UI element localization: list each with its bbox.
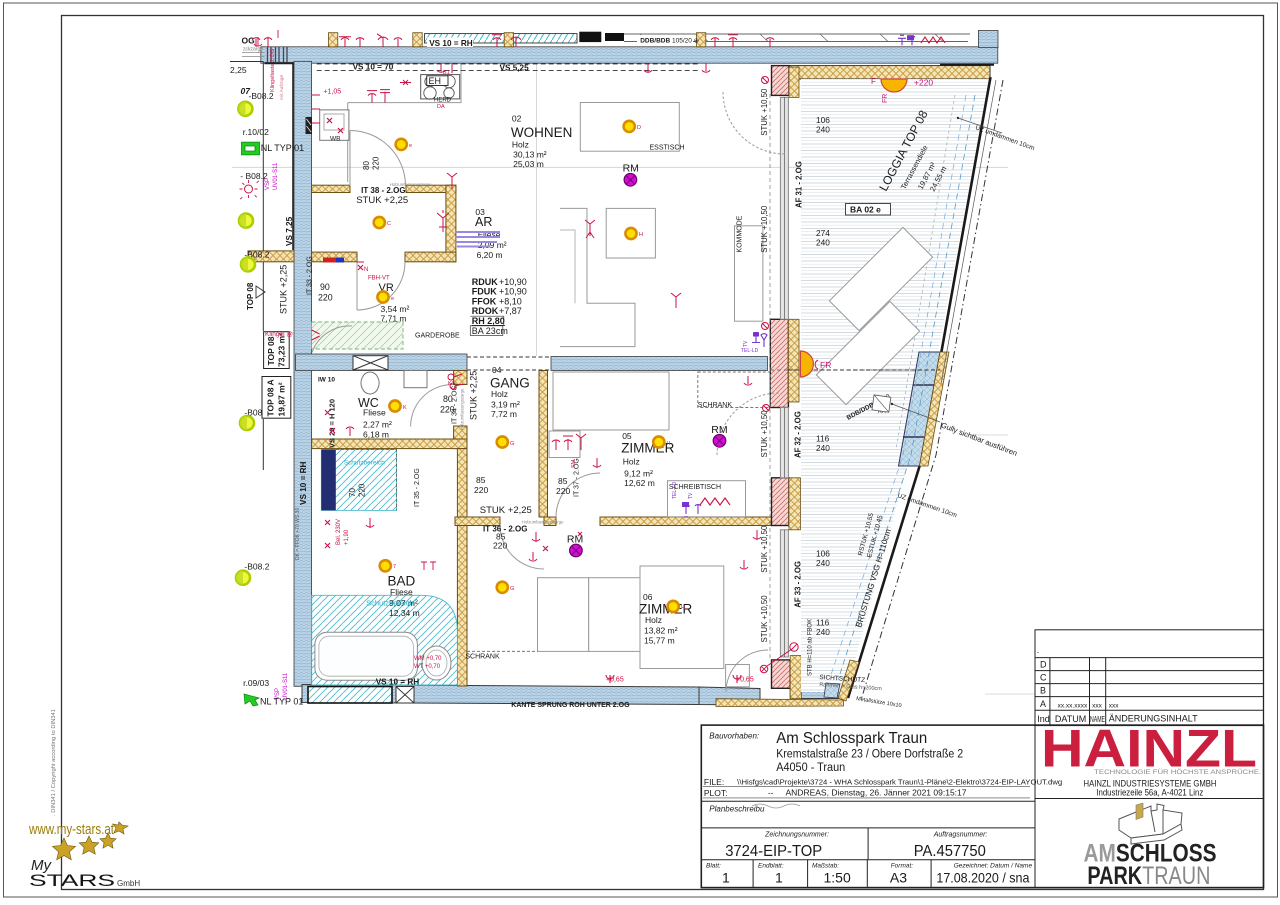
svg-text:xx.xx.xxxx: xx.xx.xxxx	[1058, 703, 1088, 710]
svg-text:TOP 08 A: TOP 08 A	[266, 379, 276, 416]
svg-text:17.08.2020 / sna: 17.08.2020 / sna	[936, 869, 1029, 885]
svg-text:AF 33 - 2.OG: AF 33 - 2.OG	[794, 561, 803, 608]
svg-text:e: e	[409, 143, 412, 149]
svg-text:02: 02	[512, 114, 522, 124]
svg-text:Schutzbereich: Schutzbereich	[366, 599, 414, 608]
svg-text:OG: OG	[242, 35, 256, 45]
svg-text:TV: TV	[743, 340, 749, 347]
svg-text:TEL-LD: TEL-LD	[741, 348, 759, 354]
svg-text:25,03 m: 25,03 m	[513, 159, 544, 169]
svg-text:6,18 m: 6,18 m	[363, 430, 389, 440]
svg-text:RH 2,80: RH 2,80	[472, 316, 505, 326]
svg-text:-B08.2: -B08.2	[244, 562, 269, 572]
svg-text:STUK +10,50: STUK +10,50	[760, 88, 769, 136]
svg-text:Klingel @: Klingel @	[265, 331, 293, 338]
svg-text:H: H	[667, 441, 671, 447]
svg-text:240: 240	[816, 443, 830, 453]
svg-text:mit Aufzüge: mit Aufzüge	[279, 75, 285, 100]
svg-text:7,72 m: 7,72 m	[491, 409, 517, 419]
svg-text:3,19 m²: 3,19 m²	[491, 400, 520, 410]
svg-text:VSP: VSP	[275, 688, 281, 700]
svg-text:UV01-S11: UV01-S11	[283, 672, 289, 700]
svg-text:9,12 m²: 9,12 m²	[624, 469, 653, 479]
svg-text:FFOK: FFOK	[472, 296, 497, 306]
svg-text:1: 1	[722, 869, 730, 885]
svg-text:2,27 m²: 2,27 m²	[363, 420, 392, 430]
svg-text:VSP: VSP	[265, 178, 271, 190]
svg-text:+1,05: +1,05	[323, 89, 341, 96]
svg-text:2,25: 2,25	[230, 65, 247, 75]
svg-text:GARDEROBE: GARDEROBE	[415, 333, 460, 340]
svg-text:240: 240	[816, 627, 830, 637]
svg-text:r.10/02: r.10/02	[243, 127, 269, 137]
svg-text:+10,90: +10,90	[499, 287, 527, 297]
svg-text:G: G	[510, 586, 514, 592]
svg-text:AR: AR	[475, 215, 492, 229]
svg-text:Kremstalstraße 23 / Obere Dorf: Kremstalstraße 23 / Obere Dorfstraße 2	[776, 749, 963, 761]
svg-text:- B08.2: - B08.2	[240, 171, 268, 181]
svg-text:RM: RM	[623, 163, 639, 175]
svg-text:220: 220	[474, 485, 488, 495]
svg-text:N: N	[364, 267, 368, 273]
svg-text:UV01-S11: UV01-S11	[273, 162, 279, 190]
svg-text:Holz: Holz	[645, 615, 662, 625]
svg-text:ESSTISCH: ESSTISCH	[650, 145, 685, 152]
svg-text:116: 116	[816, 434, 830, 444]
svg-text:VS 5,25: VS 5,25	[500, 64, 530, 73]
svg-text:STUK +10,50: STUK +10,50	[760, 595, 769, 643]
svg-text:Auftragsnummer:: Auftragsnummer:	[933, 832, 988, 839]
svg-text:VS 10 = 70: VS 10 = 70	[353, 63, 394, 72]
svg-text:+1,90: +1,90	[344, 529, 350, 545]
svg-text:r.09/03: r.09/03	[243, 678, 269, 688]
svg-text:AF 32 - 2.OG: AF 32 - 2.OG	[794, 411, 803, 458]
svg-text:HERD: HERD	[434, 98, 452, 104]
svg-text:7,71 m: 7,71 m	[381, 314, 407, 324]
svg-text:FR: FR	[820, 360, 831, 370]
svg-text:Holz: Holz	[491, 389, 508, 399]
svg-text:G: G	[510, 441, 514, 447]
svg-text:IT 35 - 2.OG: IT 35 - 2.OG	[414, 468, 421, 507]
svg-text:220: 220	[493, 541, 507, 551]
svg-text:NL TYP 01: NL TYP 01	[260, 697, 303, 707]
svg-text:240: 240	[816, 125, 830, 135]
svg-text:220: 220	[372, 156, 381, 170]
svg-text:WC: WC	[358, 396, 379, 410]
svg-text:Bel. 230V: Bel. 230V	[336, 519, 342, 545]
svg-text:VS 10 = RH: VS 10 = RH	[299, 461, 308, 505]
svg-text:274: 274	[816, 228, 830, 238]
svg-text:e: e	[391, 296, 394, 302]
svg-text:Holz: Holz	[623, 457, 640, 467]
svg-text:+7,87: +7,87	[499, 306, 522, 316]
svg-text:C: C	[387, 221, 391, 227]
svg-text:FDUK: FDUK	[472, 287, 497, 297]
svg-text:RDUK: RDUK	[472, 277, 498, 287]
svg-text:EH: EH	[429, 76, 442, 86]
svg-text:. DIN341 / Copyright according: . DIN341 / Copyright according to DIN341	[51, 709, 57, 816]
svg-text:GANG: GANG	[490, 376, 530, 391]
svg-text:B: B	[1040, 686, 1046, 696]
svg-text:04: 04	[492, 365, 502, 375]
svg-text:1:50: 1:50	[824, 869, 851, 885]
svg-text:STUK +10,50: STUK +10,50	[760, 205, 769, 253]
svg-text:Holzumfassungszarge: Holzumfassungszarge	[460, 388, 465, 430]
svg-text:SCHRANK: SCHRANK	[698, 402, 733, 409]
svg-text:85: 85	[558, 476, 568, 486]
svg-text:-: -	[1037, 650, 1039, 656]
svg-text:12,34 m: 12,34 m	[389, 608, 420, 618]
svg-text:STUK +10,50: STUK +10,50	[760, 525, 769, 573]
svg-text:FILE:: FILE:	[704, 777, 724, 787]
svg-text:D: D	[637, 125, 641, 131]
svg-text:+220: +220	[914, 78, 933, 88]
svg-text:240: 240	[816, 238, 830, 248]
svg-text:Blatt:: Blatt:	[706, 863, 721, 870]
svg-text:STUK +2,25: STUK +2,25	[480, 505, 532, 516]
svg-text:GmbH: GmbH	[117, 879, 140, 888]
svg-text:3724-EIP-TOP: 3724-EIP-TOP	[725, 843, 822, 860]
svg-text:PARKTRAUN: PARKTRAUN	[1087, 862, 1210, 890]
svg-text:STB H=110 ab FBOK: STB H=110 ab FBOK	[808, 619, 814, 676]
svg-text:SM: SM	[571, 459, 577, 468]
svg-text:KANTE SPRUNG ROH UNTER 2.OG: KANTE SPRUNG ROH UNTER 2.OG	[511, 702, 630, 709]
svg-text:7: 7	[393, 564, 396, 570]
svg-text:Bauvorhaben:: Bauvorhaben:	[709, 732, 759, 741]
svg-text:C: C	[1040, 673, 1047, 683]
svg-text:\\Hisfgs\cad\Projekte\3724 - W: \\Hisfgs\cad\Projekte\3724 - WHA Schloss…	[737, 778, 1062, 787]
svg-text:KOMMODE: KOMMODE	[737, 215, 744, 252]
svg-text:STUK +2,25: STUK +2,25	[469, 371, 479, 420]
svg-text:Industriezeile 56a, A-4021 Lin: Industriezeile 56a, A-4021 Linz	[1096, 787, 1203, 797]
svg-text:05: 05	[622, 431, 632, 441]
svg-text:--: --	[768, 788, 774, 797]
svg-text:DK = FFOK +70 WS 30: DK = FFOK +70 WS 30	[295, 508, 301, 560]
svg-text:D: D	[1040, 660, 1047, 670]
svg-text:Holzumfassungszarge: Holzumfassungszarge	[522, 520, 564, 525]
svg-text:A3: A3	[890, 869, 907, 885]
svg-text:NL TYP 01: NL TYP 01	[261, 143, 304, 153]
svg-text:3,54 m²: 3,54 m²	[381, 304, 410, 314]
svg-text:DDB/BDB 105/20 ⊕: DDB/BDB 105/20 ⊕	[640, 38, 699, 45]
svg-text:+0,65: +0,65	[736, 677, 754, 684]
svg-text:DA: DA	[437, 104, 445, 110]
svg-text:STUK +2,25: STUK +2,25	[356, 195, 408, 206]
svg-text:H: H	[639, 232, 643, 238]
svg-text:SCHRANK: SCHRANK	[465, 654, 500, 661]
svg-text:FR: FR	[882, 94, 889, 103]
svg-text:K1: K1	[448, 381, 455, 387]
svg-text:VS 10 = RH: VS 10 = RH	[429, 39, 473, 48]
svg-text:12,62 m: 12,62 m	[624, 478, 655, 488]
svg-text:Schutzbereich: Schutzbereich	[344, 459, 386, 466]
svg-text:15,77 m: 15,77 m	[644, 636, 675, 646]
svg-text:Holz: Holz	[512, 139, 529, 149]
svg-text:PA.457750: PA.457750	[914, 843, 986, 860]
svg-text:Fliese: Fliese	[390, 587, 413, 597]
svg-text:220: 220	[318, 293, 333, 303]
svg-text:Planbeschreibu: Planbeschreibu	[709, 805, 765, 814]
svg-text:80: 80	[362, 161, 371, 170]
svg-text:F: F	[871, 77, 876, 86]
svg-text:IT 38 - 2.OG: IT 38 - 2.OG	[361, 186, 405, 195]
svg-text:Zeichnungsnummer:: Zeichnungsnummer:	[764, 832, 829, 839]
svg-text:IT 36 - 2.OG: IT 36 - 2.OG	[483, 525, 527, 534]
svg-text:AF 31 - 2.OG: AF 31 - 2.OG	[794, 161, 803, 208]
svg-text:STUK +10,50: STUK +10,50	[760, 410, 769, 458]
svg-text:BAD: BAD	[388, 574, 416, 589]
svg-text:VS 10 = RH: VS 10 = RH	[376, 678, 420, 687]
svg-text:6,20 m: 6,20 m	[477, 250, 503, 260]
svg-text:IT 33 - 2.OG: IT 33 - 2.OG	[307, 256, 314, 295]
svg-text:19,87 m²: 19,87 m²	[277, 382, 287, 416]
svg-text:IW 10: IW 10	[318, 377, 335, 384]
svg-text:xxx: xxx	[1109, 703, 1120, 710]
svg-text:70: 70	[348, 488, 357, 497]
svg-text:30,13 m²: 30,13 m²	[513, 149, 547, 159]
svg-text:IT 34 - 2.OG: IT 34 - 2.OG	[452, 385, 459, 424]
svg-text:+10,90: +10,90	[499, 277, 527, 287]
svg-text:106: 106	[816, 549, 830, 559]
svg-text:TEL-LD: TEL-LD	[672, 481, 678, 499]
svg-text:BA 23cm: BA 23cm	[472, 326, 508, 336]
svg-text:Klingeltaste 2.OG: Klingeltaste 2.OG	[270, 49, 276, 92]
svg-text:Holzumfassungszarge: Holzumfassungszarge	[390, 182, 432, 187]
svg-text:www.my-stars.at: www.my-stars.at	[28, 822, 114, 838]
svg-text:220: 220	[358, 483, 367, 497]
svg-text:ANDREAS, Dienstag, 26. Jänner: ANDREAS, Dienstag, 26. Jänner 2021 09:15…	[786, 787, 967, 797]
svg-text:BA 02 e: BA 02 e	[850, 205, 881, 215]
svg-text:240: 240	[816, 558, 830, 568]
svg-text:85: 85	[476, 475, 486, 485]
svg-text:RDOK: RDOK	[472, 306, 499, 316]
svg-text:106: 106	[816, 115, 830, 125]
svg-text:WOHNEN: WOHNEN	[511, 125, 573, 140]
svg-text:STUK +2,25: STUK +2,25	[279, 265, 289, 314]
svg-text:A4050 - Traun: A4050 - Traun	[776, 762, 845, 774]
svg-text:TV: TV	[688, 492, 694, 499]
svg-text:zckzarge: zckzarge	[243, 47, 263, 53]
svg-text:xxx: xxx	[1092, 703, 1103, 710]
svg-text:TECHNOLOGIE FÜR HÖCHSTE ANSPRÜ: TECHNOLOGIE FÜR HÖCHSTE ANSPRÜCHE.	[1094, 769, 1261, 776]
svg-text:PLOT:: PLOT:	[704, 788, 728, 798]
svg-text:STARS: STARS	[29, 871, 115, 890]
svg-text:90: 90	[320, 282, 330, 292]
svg-text:B1: B1	[443, 70, 450, 76]
svg-text:+8,10: +8,10	[499, 296, 522, 306]
svg-text:Am Schlosspark Traun: Am Schlosspark Traun	[776, 730, 927, 747]
svg-text:VS 20 = H 120: VS 20 = H 120	[328, 399, 337, 448]
svg-text:+0,65: +0,65	[606, 677, 624, 684]
svg-text:1: 1	[775, 869, 783, 885]
svg-text:220: 220	[556, 486, 570, 496]
svg-text:06: 06	[643, 592, 653, 602]
svg-text:WB: WB	[330, 136, 340, 143]
svg-text:TOP 08: TOP 08	[246, 282, 255, 310]
svg-text:WM +0,70: WM +0,70	[414, 656, 442, 662]
svg-text:RM: RM	[711, 424, 727, 436]
svg-text:116: 116	[816, 618, 830, 628]
svg-text:K: K	[403, 405, 407, 411]
svg-text:TOP 08: TOP 08	[266, 336, 276, 365]
svg-text:FBH-VT: FBH-VT	[368, 276, 390, 282]
svg-text:WT +0,70: WT +0,70	[414, 664, 441, 670]
svg-text:13,82 m²: 13,82 m²	[644, 626, 678, 636]
svg-text:H: H	[681, 605, 685, 611]
svg-text:A: A	[1040, 699, 1046, 709]
